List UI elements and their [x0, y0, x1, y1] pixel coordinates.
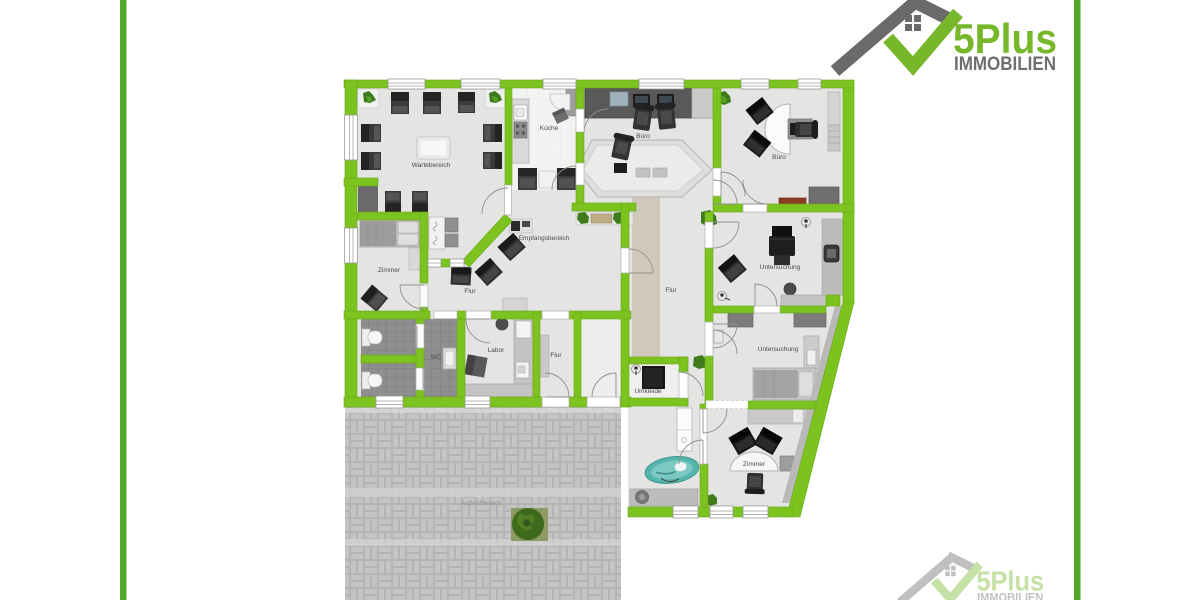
svg-text:Flur: Flur	[550, 352, 562, 359]
svg-text:Flur: Flur	[464, 288, 476, 295]
svg-text:Außenbereich: Außenbereich	[461, 500, 502, 507]
svg-text:Empfangsbereich: Empfangsbereich	[519, 235, 570, 242]
svg-text:Büro: Büro	[636, 133, 650, 140]
svg-text:WC: WC	[431, 354, 442, 361]
svg-text:Zimmer: Zimmer	[378, 267, 401, 274]
svg-text:IMMOBILIEN: IMMOBILIEN	[977, 591, 1043, 600]
svg-text:Wartebereich: Wartebereich	[412, 162, 451, 169]
svg-text:Büro: Büro	[772, 154, 786, 161]
svg-text:Flur: Flur	[665, 287, 677, 294]
svg-text:IMMOBILIEN: IMMOBILIEN	[954, 54, 1056, 75]
svg-text:Untersuchung: Untersuchung	[758, 346, 799, 353]
svg-text:Untersuchung: Untersuchung	[760, 264, 801, 271]
svg-text:Zimmer: Zimmer	[743, 461, 766, 468]
svg-text:Umkleide: Umkleide	[634, 388, 661, 395]
svg-text:Labor: Labor	[488, 347, 505, 354]
svg-text:Küche: Küche	[540, 125, 559, 132]
